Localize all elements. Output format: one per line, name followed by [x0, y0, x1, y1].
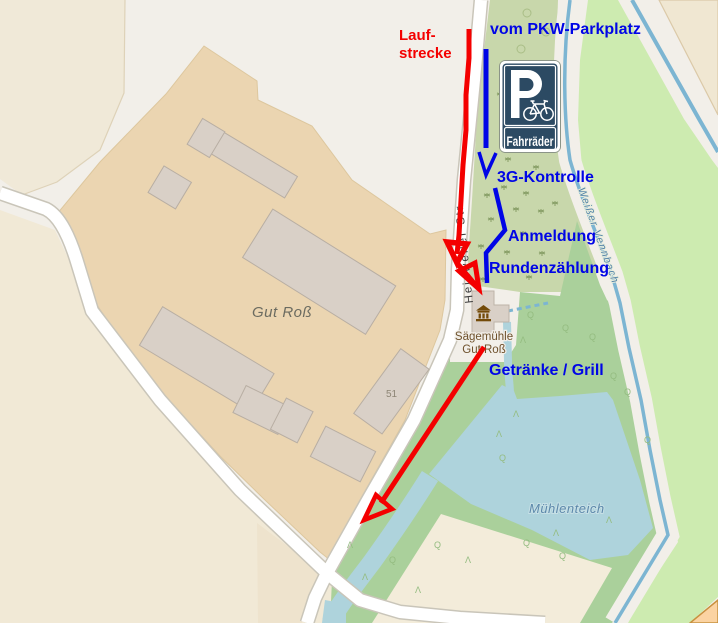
svg-text:Q: Q [624, 387, 631, 397]
svg-text:Q: Q [527, 310, 534, 320]
svg-text:3G-Kontrolle: 3G-Kontrolle [497, 169, 594, 186]
svg-text:Anmeldung: Anmeldung [508, 228, 596, 245]
svg-text:Λ: Λ [513, 409, 519, 419]
svg-text:Λ: Λ [520, 335, 526, 345]
svg-text:Λ: Λ [553, 528, 559, 538]
svg-text:Λ: Λ [496, 429, 502, 439]
svg-text:Λ: Λ [415, 585, 421, 595]
svg-text:Λ: Λ [606, 515, 612, 525]
svg-text:Fahrräder: Fahrräder [507, 133, 554, 149]
svg-text:Q: Q [434, 540, 441, 550]
svg-text:Λ: Λ [362, 572, 368, 582]
svg-text:Q: Q [523, 538, 530, 548]
svg-text:Q: Q [389, 555, 396, 565]
svg-text:Q: Q [589, 332, 596, 342]
svg-text:Sägemühle: Sägemühle [455, 331, 513, 343]
svg-text:Gut Roß: Gut Roß [252, 304, 312, 321]
svg-text:Q: Q [644, 435, 651, 445]
svg-text:Q: Q [562, 323, 569, 333]
svg-text:Getränke / Grill: Getränke / Grill [489, 362, 604, 379]
svg-text:Q: Q [499, 453, 506, 463]
svg-text:Lauf-: Lauf- [399, 27, 436, 44]
svg-text:Λ: Λ [465, 555, 471, 565]
svg-text:strecke: strecke [399, 45, 452, 62]
svg-text:Λ: Λ [347, 540, 353, 550]
svg-text:Q: Q [610, 371, 617, 381]
svg-text:Q: Q [559, 551, 566, 561]
svg-text:vom PKW-Parkplatz: vom PKW-Parkplatz [490, 21, 641, 38]
svg-text:51: 51 [386, 389, 398, 400]
svg-text:Mühlenteich: Mühlenteich [529, 501, 605, 516]
svg-text:Rundenzählung: Rundenzählung [489, 260, 609, 277]
